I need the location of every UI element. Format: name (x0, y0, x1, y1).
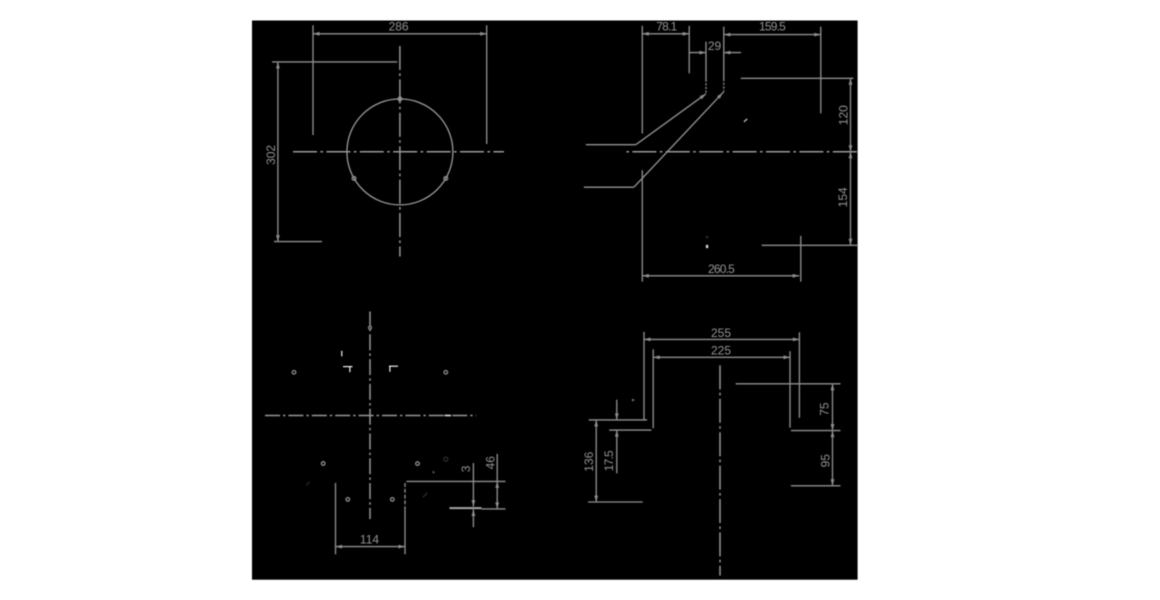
svg-text:114: 114 (360, 532, 379, 546)
svg-text:154: 154 (836, 187, 850, 207)
svg-text:286: 286 (389, 20, 409, 34)
svg-text:75: 75 (818, 402, 832, 416)
svg-text:302: 302 (264, 145, 278, 165)
svg-text:95: 95 (818, 454, 832, 468)
svg-text:120: 120 (837, 105, 851, 125)
svg-text:136: 136 (582, 451, 596, 471)
svg-text:78.1: 78.1 (656, 20, 677, 34)
svg-text:225: 225 (711, 344, 731, 358)
svg-text:159.5: 159.5 (759, 20, 786, 34)
svg-text:29: 29 (708, 39, 722, 53)
svg-text:3: 3 (459, 465, 473, 472)
svg-text:255: 255 (711, 326, 731, 340)
svg-text:17.5: 17.5 (602, 450, 616, 471)
svg-text:260.5: 260.5 (708, 262, 735, 276)
svg-text:46: 46 (484, 456, 498, 470)
